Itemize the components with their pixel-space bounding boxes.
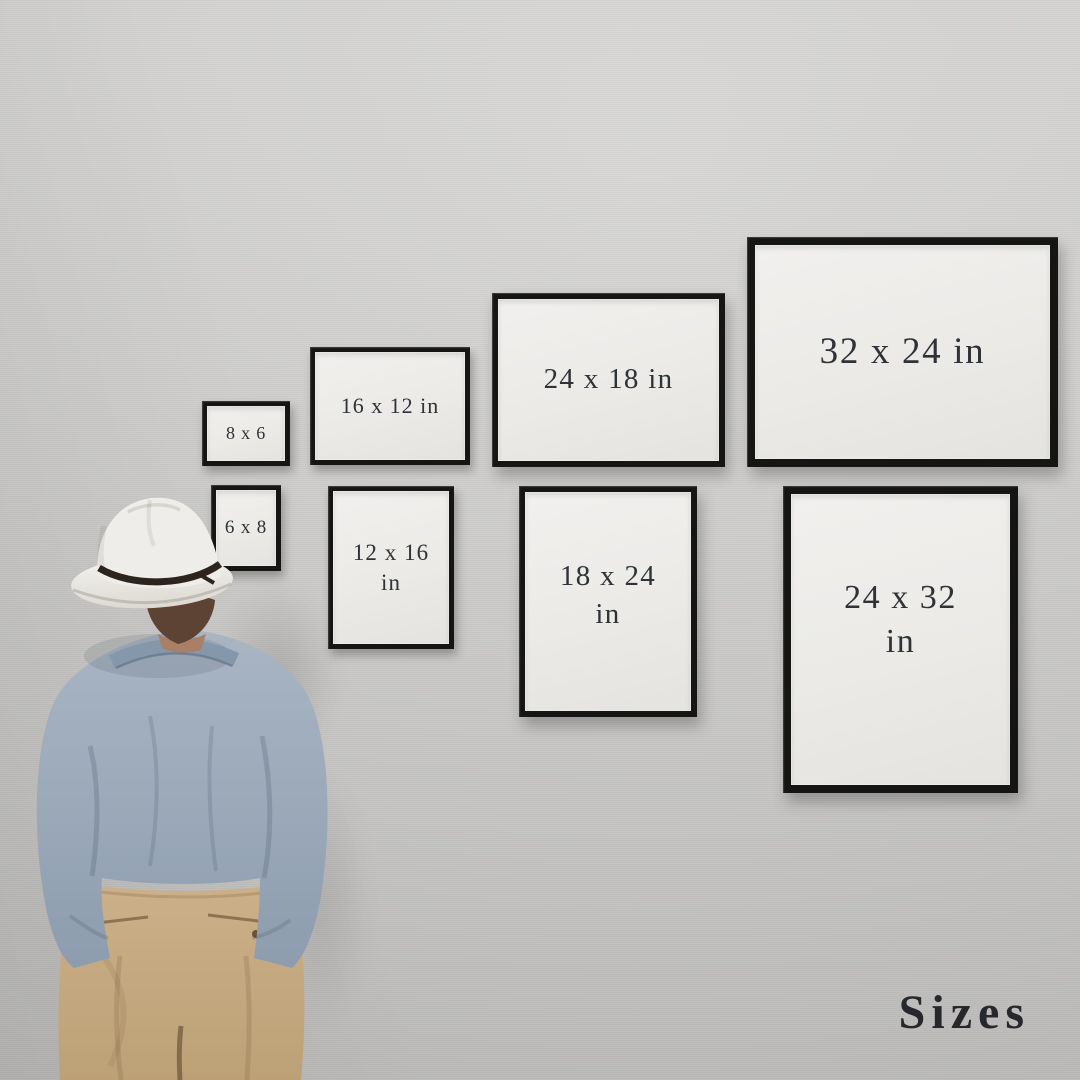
straw-fedora-hat — [70, 498, 234, 612]
frame-paper: 8 x 6 — [207, 406, 285, 461]
leg-crease — [179, 1026, 181, 1080]
man-figure — [0, 486, 360, 1080]
size-label: 8 x 6 — [226, 422, 266, 445]
size-label: 24 x 18 in — [544, 361, 674, 398]
frame-18x24: 18 x 24in — [519, 486, 697, 717]
frame-24x32: 24 x 32in — [783, 486, 1018, 793]
frame-24x18: 24 x 18 in — [492, 293, 725, 467]
size-label: 12 x 16in — [353, 538, 429, 597]
size-label: 32 x 24 in — [820, 328, 986, 375]
frame-32x24: 32 x 24 in — [747, 237, 1058, 467]
frame-paper: 24 x 32in — [791, 494, 1010, 785]
frame-16x12: 16 x 12 in — [310, 347, 470, 465]
frame-paper: 24 x 18 in — [498, 299, 719, 461]
sizes-caption: Sizes — [899, 985, 1030, 1040]
size-label: 24 x 32in — [844, 576, 957, 703]
size-label: 16 x 12 in — [341, 392, 440, 420]
size-label: 18 x 24in — [560, 558, 656, 644]
size-chart-mockup: 8 x 6 16 x 12 in 24 x 18 in 32 x 24 in 6 — [0, 0, 1080, 1080]
frame-8x6: 8 x 6 — [202, 401, 290, 466]
frame-paper: 16 x 12 in — [315, 352, 465, 460]
frame-paper: 32 x 24 in — [755, 245, 1050, 459]
frame-paper: 18 x 24in — [525, 492, 691, 711]
